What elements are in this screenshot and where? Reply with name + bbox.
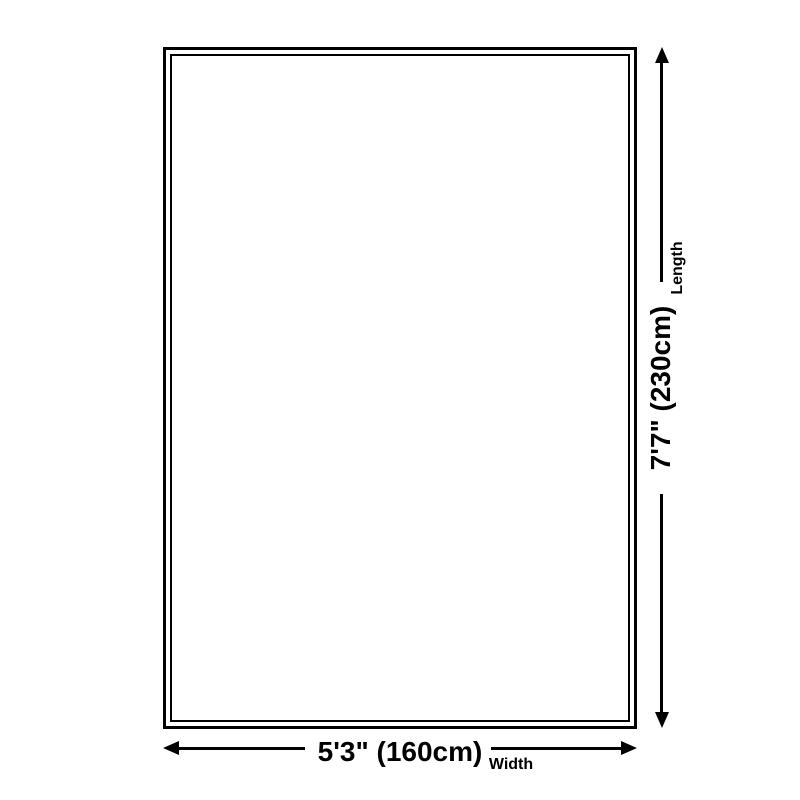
rug-outline — [163, 47, 637, 729]
arrow-down-icon — [655, 712, 669, 728]
length-value: 7'7" (230cm) — [645, 306, 677, 471]
arrow-right-icon — [621, 741, 637, 755]
width-dimension-line-right — [491, 747, 622, 750]
dimension-diagram: Length 7'7" (230cm) 5'3" (160cm) Width — [0, 0, 800, 800]
rug-inner-border — [170, 54, 630, 722]
arrow-up-icon — [655, 47, 669, 63]
length-label: Length — [669, 241, 687, 294]
width-label: Width — [489, 756, 533, 774]
width-dimension-line-left — [178, 747, 305, 750]
arrow-left-icon — [163, 741, 179, 755]
length-dimension-line-top — [660, 62, 663, 282]
length-dimension-line-bottom — [660, 494, 663, 713]
width-value: 5'3" (160cm) — [318, 736, 483, 768]
